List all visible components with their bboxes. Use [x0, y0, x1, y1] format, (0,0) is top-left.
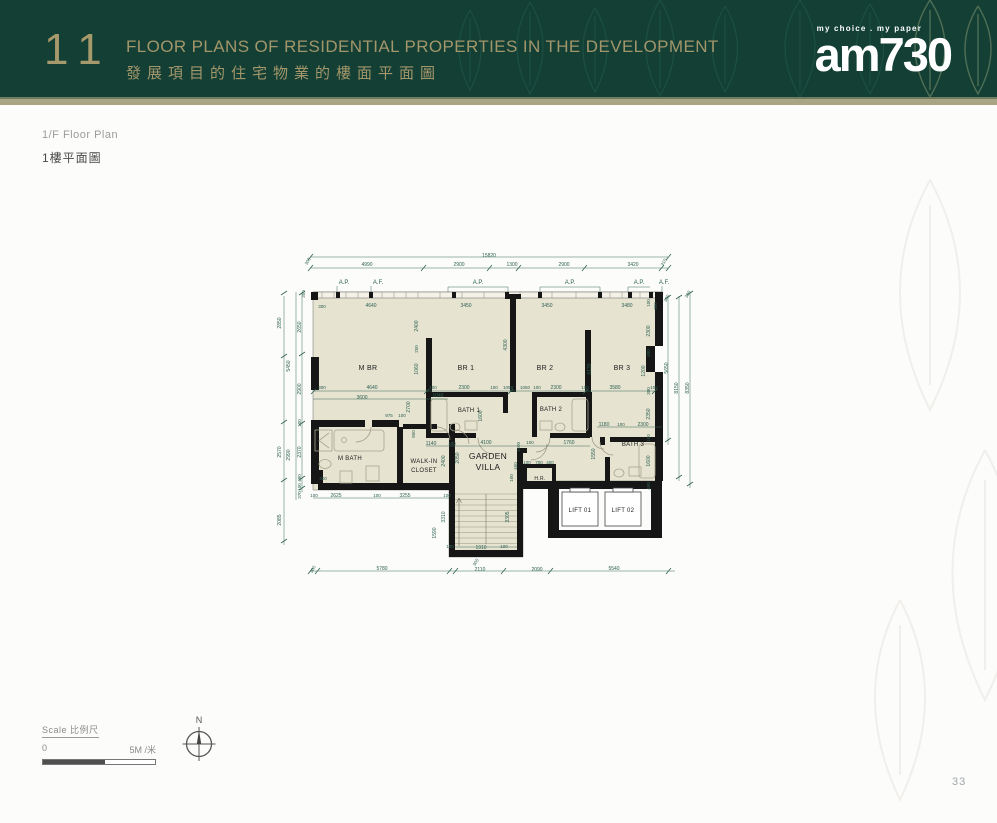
dimension-text: 4990	[361, 262, 372, 268]
dimension-text: 3580	[609, 385, 620, 391]
dimension-text: 100	[373, 493, 381, 498]
dimension-text: 3310	[441, 511, 447, 522]
room-label: M BATH	[338, 456, 362, 462]
scale-start: 0	[42, 743, 47, 756]
dimension-text: 300	[684, 289, 692, 298]
dimension-text: 5650	[664, 362, 670, 373]
scale-bar	[42, 759, 156, 765]
floor-plan-drawing: 1582049902900130029003420310A.P.A.F.A.P.…	[270, 240, 730, 590]
dimension-text: 700	[535, 460, 543, 465]
dimension-text: A.F.	[373, 280, 384, 286]
dimension-text: 370	[297, 491, 302, 499]
header-titles: FLOOR PLANS OF RESIDENTIAL PROPERTIES IN…	[126, 37, 719, 83]
scale-legend: Scale 比例尺 0 5M /米	[42, 723, 156, 765]
dimension-text: 3305	[505, 511, 511, 522]
dimension-text: 1550	[591, 448, 597, 459]
dimension-text: A.F.	[659, 280, 670, 286]
dimension-text: 6130	[587, 363, 593, 374]
dimension-text: 8150	[674, 382, 680, 393]
dimension-text: 2085	[277, 514, 283, 525]
chapter-number: 11	[44, 28, 114, 72]
dimension-text: 1060	[414, 363, 420, 374]
room-label: BR 2	[537, 365, 554, 372]
dimension-text: 480	[297, 474, 302, 482]
dimension-text: 1300	[506, 262, 517, 268]
dimension-text: 300	[304, 256, 312, 265]
dimension-text: A.P.	[473, 280, 484, 286]
dimension-text: 4640	[366, 385, 377, 391]
dimension-text: 2050	[455, 452, 461, 463]
room-label: LIFT 02	[612, 508, 635, 514]
dimension-text: 2350	[646, 408, 652, 419]
header-divider-bar	[0, 97, 997, 105]
dimension-text: 100	[429, 385, 437, 390]
dimension-text: 300	[663, 293, 671, 302]
room-label: M BR	[359, 365, 378, 372]
am730-logo: my choice . my paper am730	[815, 24, 951, 78]
room-label: BATH 1	[458, 408, 481, 414]
dimension-text: 100	[310, 493, 318, 498]
scale-bar-dark-segment	[43, 760, 105, 764]
dimension-text: 4100	[480, 440, 491, 446]
dimension-text: 2400	[441, 455, 447, 466]
dimension-text: 100	[446, 544, 454, 549]
dimension-text: 4640	[365, 303, 376, 309]
dimension-text: 300	[318, 385, 326, 390]
dimension-text: 2300	[550, 385, 561, 391]
dimension-text: 1180	[599, 422, 610, 428]
page-header: 11 FLOOR PLANS OF RESIDENTIAL PROPERTIES…	[0, 0, 997, 97]
scale-end: 5M /米	[129, 743, 156, 756]
dimension-text: 2110	[475, 567, 486, 573]
dimension-text: 350	[301, 290, 306, 298]
dimension-text: 1600	[646, 455, 652, 466]
dimension-text: 200	[653, 302, 658, 310]
dimension-text: 100	[533, 385, 541, 390]
dimension-text: 100	[490, 385, 498, 390]
dimension-text: 300	[318, 304, 326, 309]
dimension-text: 250	[414, 345, 419, 353]
room-label: LIFT 01	[569, 508, 592, 514]
scale-title: Scale 比例尺	[42, 723, 99, 738]
dimension-text: 2400	[414, 320, 420, 331]
dimension-text: 2990	[286, 449, 292, 460]
dimension-text: 100	[650, 385, 658, 390]
north-arrow: N	[182, 714, 216, 766]
dimension-text: 100	[523, 460, 531, 465]
room-label: BR 3	[614, 365, 631, 372]
room-label: BR 1	[458, 365, 475, 372]
floor-heading-en: 1/F Floor Plan	[42, 129, 118, 141]
dimension-text: 300	[646, 387, 651, 395]
dimension-text: 1050	[520, 385, 531, 390]
dimension-text: 100	[509, 474, 514, 482]
dimension-text: 100	[646, 299, 651, 307]
dimension-text: 100	[581, 385, 589, 390]
dimension-text: 2300	[637, 422, 648, 428]
dimension-text: 100	[297, 483, 302, 491]
dimension-text: 3420	[627, 262, 638, 268]
dimension-text: 1050	[503, 385, 514, 390]
dimension-text: 300	[309, 564, 317, 573]
dimension-text: 300	[472, 557, 480, 566]
dimension-text: 8350	[685, 382, 691, 393]
dimension-text: 2900	[453, 262, 464, 268]
dimension-text: 1910	[475, 545, 486, 551]
room-label: BATH 2	[540, 407, 563, 413]
dimension-text: 2090	[531, 567, 542, 573]
dimension-text: 2300	[458, 385, 469, 391]
dimension-text: 5450	[286, 360, 292, 371]
lift-cars	[562, 488, 641, 526]
dimension-text: 975	[385, 413, 393, 418]
dimension-text: 1500	[516, 441, 521, 452]
page-number: 33	[952, 776, 966, 788]
logo-name: am730	[815, 33, 951, 78]
north-label: N	[196, 715, 203, 725]
dimension-text: 850	[411, 430, 416, 438]
scale-bar-light-segment	[105, 760, 155, 764]
dimension-text: 2625	[330, 493, 341, 499]
room-label: VILLA	[476, 462, 501, 472]
dimension-text: 1140	[426, 441, 437, 447]
dimension-text: 400	[546, 460, 554, 465]
room-label: BATH 3	[622, 442, 645, 448]
dimension-text: 5780	[376, 566, 387, 572]
dimension-text: 3480	[621, 303, 632, 309]
floor-heading-zh: 1樓平面圖	[42, 149, 118, 166]
dimension-text: 2700	[406, 401, 412, 412]
page-watermark-leaves	[780, 120, 997, 820]
dimension-text: 2370	[297, 446, 303, 457]
dimension-text: 100	[297, 419, 302, 427]
dimension-text: 3450	[460, 303, 471, 309]
dimension-text: 1590	[432, 527, 438, 538]
dimension-text: A.P.	[634, 280, 645, 286]
dimension-text: 100	[500, 544, 508, 549]
dimension-text: 300	[319, 476, 327, 481]
dimension-text: A.P.	[565, 280, 576, 286]
dimension-text: 100	[448, 441, 456, 446]
dimension-text: 5540	[608, 566, 619, 572]
dimension-text: 1200	[641, 365, 647, 376]
room-label: CLOSET	[411, 468, 437, 474]
dimension-text: 100	[398, 413, 406, 418]
dimension-text: 100	[646, 434, 651, 442]
dimension-text: 400	[646, 349, 651, 357]
dimension-text: 3255	[399, 493, 410, 499]
dimension-text: 400	[646, 482, 651, 490]
dimension-text: 2900	[297, 383, 303, 394]
dimension-text: 100	[526, 440, 534, 445]
dimension-text: 2900	[558, 262, 569, 268]
room-label: WALK-IN	[411, 459, 438, 465]
dimension-text: A.P.	[339, 280, 350, 286]
dimension-text: 2300	[646, 325, 652, 336]
dimension-text: 450	[513, 462, 518, 470]
window-band	[313, 292, 662, 298]
dimension-text: 2850	[277, 317, 283, 328]
room-label: H.R.	[534, 476, 545, 482]
dimension-text: 2570	[277, 446, 283, 457]
dimension-text: 3450	[541, 303, 552, 309]
dimension-text: 2650	[297, 321, 303, 332]
dimension-text: 15820	[482, 253, 496, 259]
dimension-text: 1040	[432, 393, 443, 399]
dimension-text: 100	[617, 422, 625, 427]
floor-heading: 1/F Floor Plan 1樓平面圖	[42, 129, 118, 166]
brochure-page: 11 FLOOR PLANS OF RESIDENTIAL PROPERTIES…	[0, 0, 997, 823]
page-title-zh: 發展項目的住宅物業的樓面平面圖	[126, 62, 719, 83]
dimension-text: 100	[443, 493, 451, 498]
dimension-text: 4300	[503, 339, 509, 350]
dimension-text: 1760	[563, 440, 574, 446]
page-title-en: FLOOR PLANS OF RESIDENTIAL PROPERTIES IN…	[126, 37, 719, 57]
dimension-text: 3600	[356, 395, 367, 401]
room-label: GARDEN	[469, 451, 507, 461]
